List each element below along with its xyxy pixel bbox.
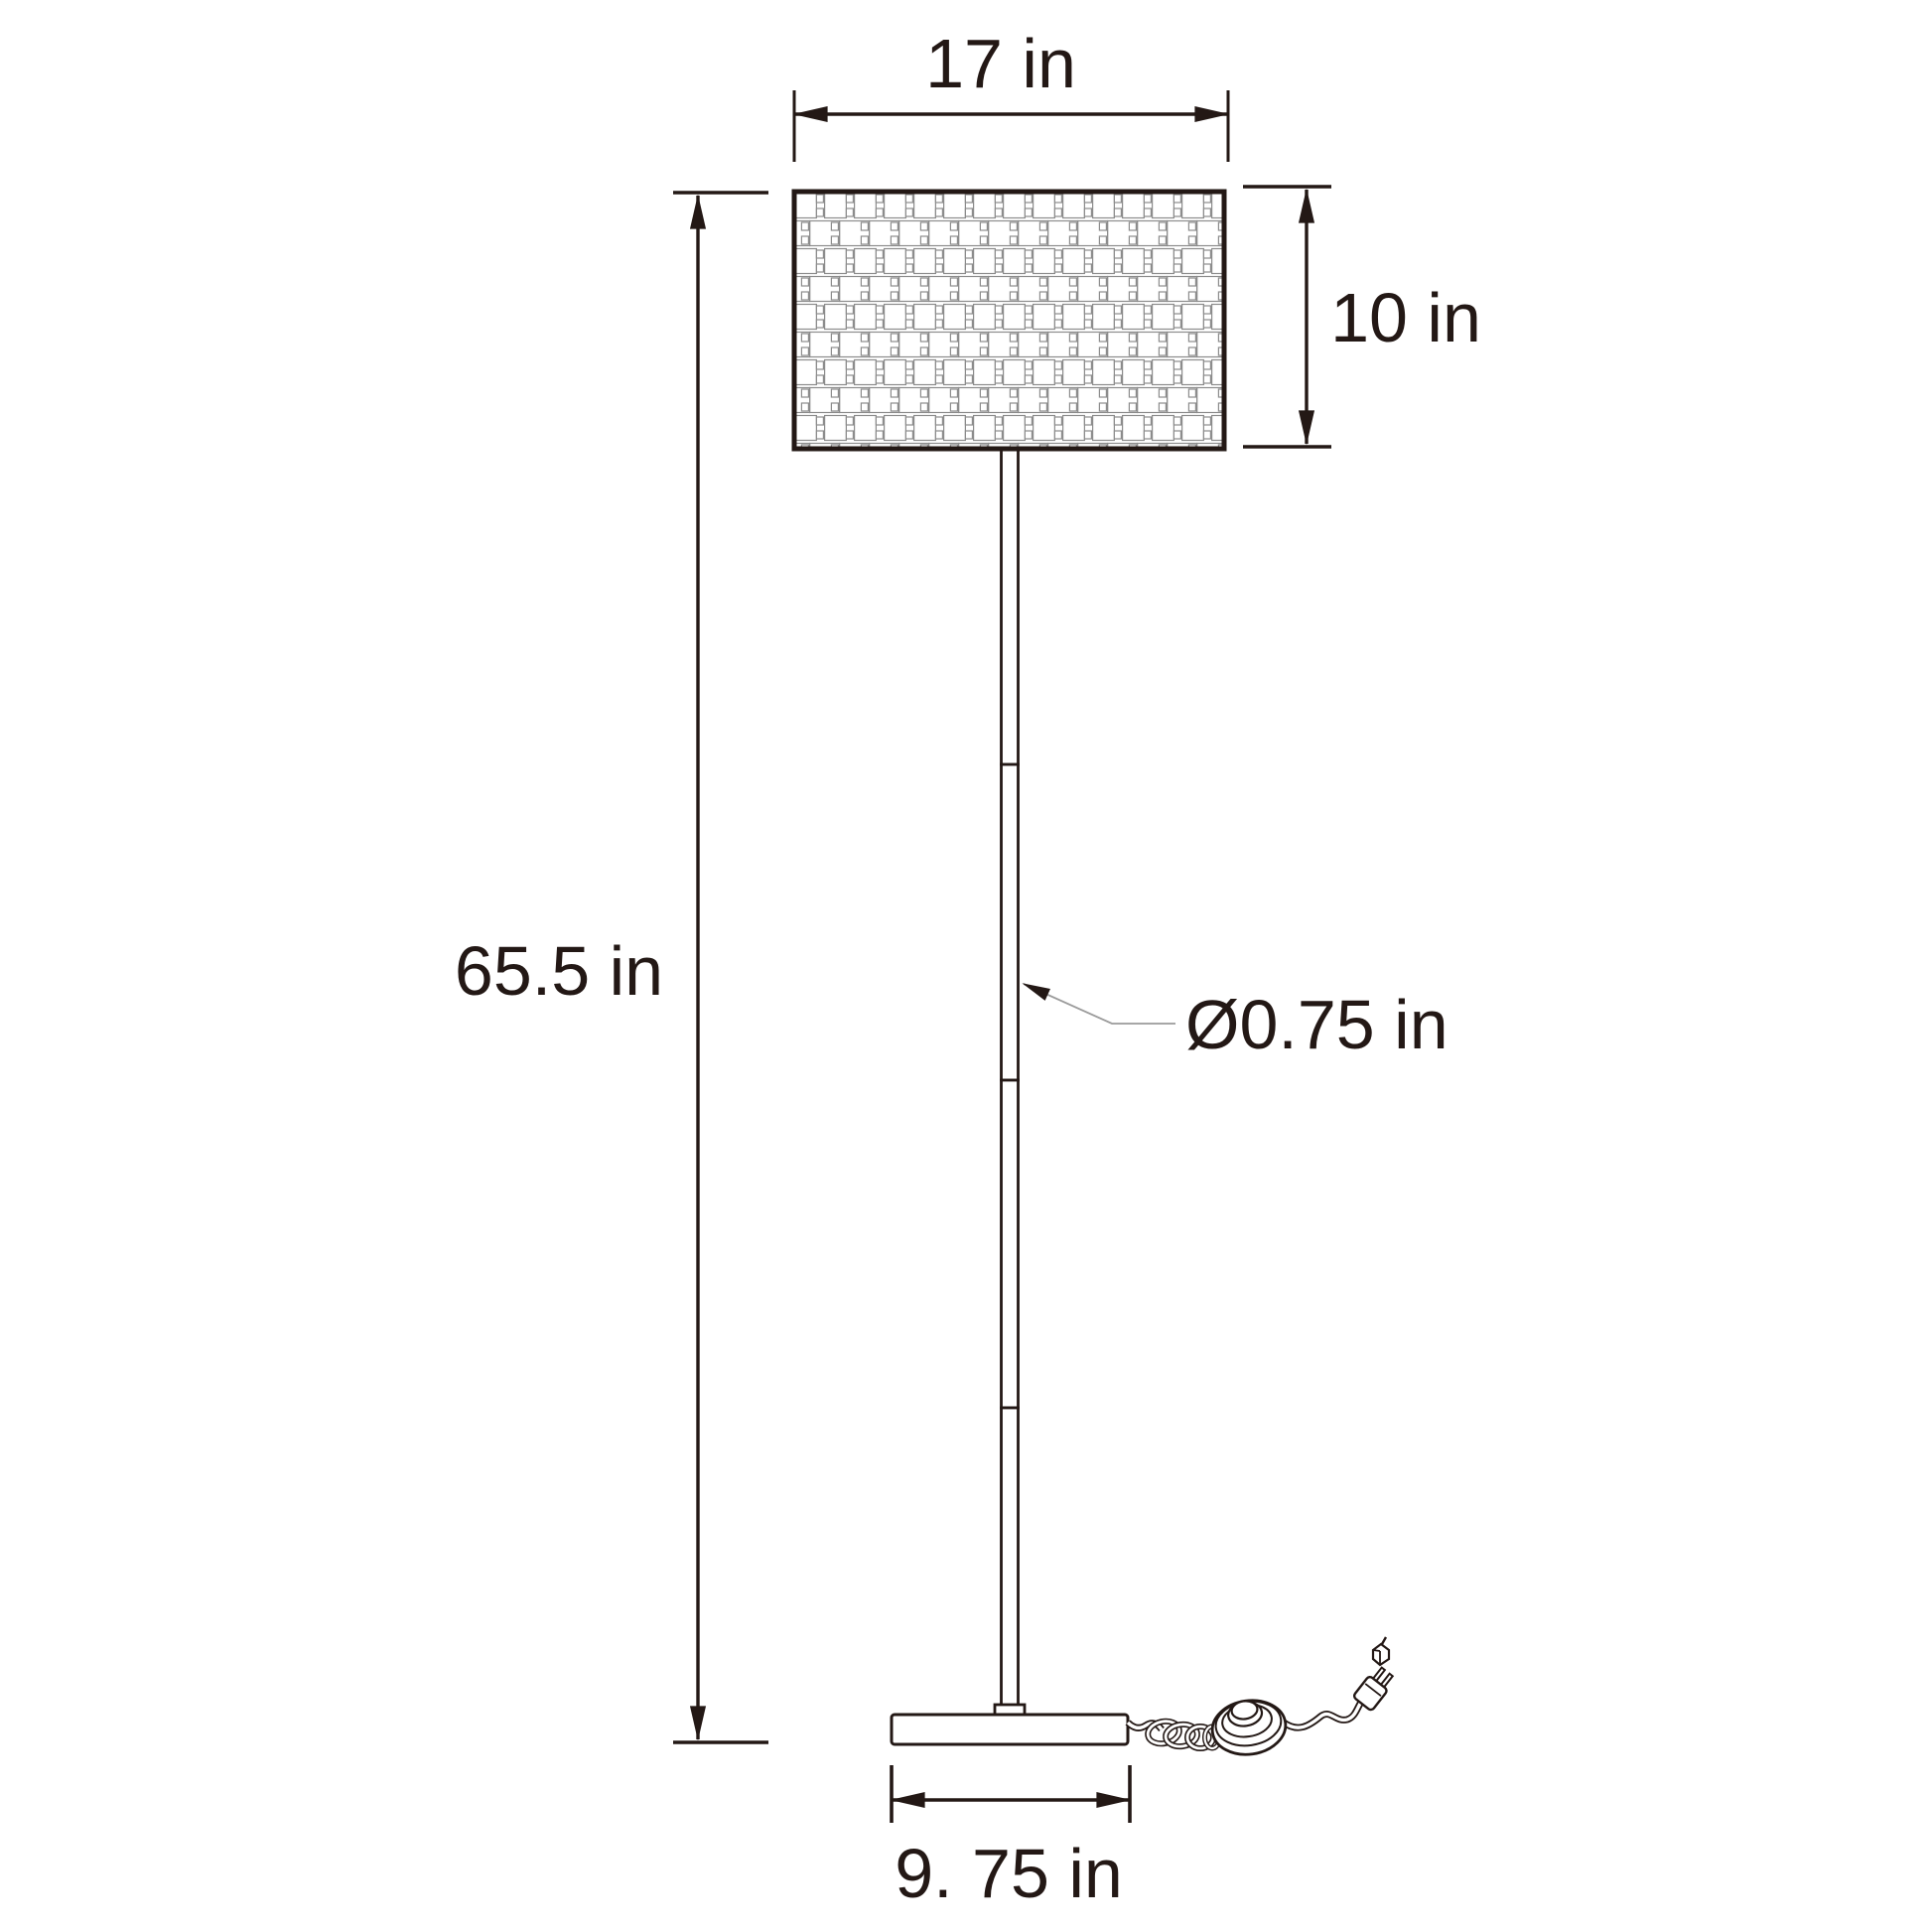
plug-safety-cap (1373, 1637, 1389, 1665)
cap-blade (1382, 1637, 1386, 1644)
foot-switch (1209, 1696, 1290, 1759)
lamp-base (892, 1715, 1128, 1744)
dim-shade-height: 10 in (1243, 187, 1481, 447)
dim-pole-diameter-leader (1024, 984, 1175, 1024)
dim-lamp-height-label: 65.5 in (455, 932, 663, 1010)
lamp-pole (995, 449, 1025, 1715)
pole-segment-4 (1002, 1408, 1019, 1710)
power-plug (1353, 1637, 1397, 1712)
dim-shade-height-label: 10 in (1330, 279, 1481, 356)
dim-base-width-label: 9. 75 in (895, 1835, 1123, 1912)
dim-shade-width-label: 17 in (925, 25, 1076, 102)
dim-lamp-height: 65.5 in (455, 193, 768, 1742)
cord-coil (1146, 1719, 1219, 1748)
dim-shade-width: 17 in (794, 25, 1228, 162)
cap-outline (1373, 1644, 1389, 1665)
dim-pole-diameter-label: Ø0.75 in (1185, 986, 1449, 1063)
shade-body (794, 192, 1224, 449)
dim-base-width: 9. 75 in (892, 1765, 1130, 1912)
dim-pole-diameter: Ø0.75 in (1024, 984, 1449, 1063)
base-slab (892, 1715, 1128, 1744)
diagram-canvas: 17 in 10 in 65.5 in Ø0.75 in 9. 75 in (0, 0, 1932, 1932)
lamp-shade (794, 192, 1224, 449)
pole-segment-3 (1002, 1080, 1019, 1408)
floor-lamp-dimension-diagram: 17 in 10 in 65.5 in Ø0.75 in 9. 75 in (0, 0, 1932, 1932)
cap-fold (1373, 1650, 1380, 1651)
pole-segment-1 (1002, 449, 1019, 764)
pole-segment-2 (1002, 764, 1019, 1080)
